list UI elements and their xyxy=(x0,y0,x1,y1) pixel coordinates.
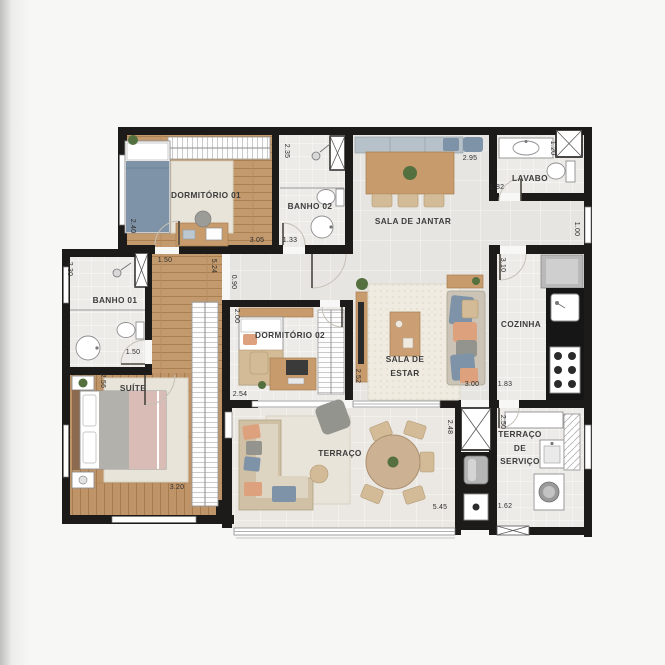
shaft-lavabo xyxy=(556,130,582,157)
sliding-door-sala-terraco xyxy=(353,401,440,407)
dim-servico-depth: 2.50 xyxy=(499,415,506,429)
plant-dorm02 xyxy=(258,381,266,389)
dim-banho02-depth: 2.35 xyxy=(283,144,290,158)
desk-dorm02 xyxy=(250,352,316,390)
dining-table-jantar xyxy=(366,152,454,207)
tv-console xyxy=(356,278,368,382)
dim-lavabo-depth: 1.20 xyxy=(549,141,556,155)
dining-chair xyxy=(398,194,418,207)
desk-chair-dorm02 xyxy=(250,352,268,374)
shaft-banho02 xyxy=(330,136,345,170)
dim-dorm02-depth: 2.00 xyxy=(233,309,240,323)
shower-head-banho02 xyxy=(312,152,320,160)
bench-servico xyxy=(505,412,563,428)
label-suite: SUÍTE xyxy=(120,383,146,393)
stove xyxy=(550,347,580,393)
label-banho-02: BANHO 02 xyxy=(288,201,333,211)
dim-cozinha-width: 1.83 xyxy=(498,381,512,388)
window-suite-bottom xyxy=(112,517,196,523)
label-terraco-servico-2: DE xyxy=(514,443,526,453)
furniture-cozinha xyxy=(541,255,584,400)
coffee-table xyxy=(390,312,420,356)
desk-chair-dorm01 xyxy=(195,211,211,227)
fridge xyxy=(541,255,583,288)
dim-dorm02-right-depth: 2.52 xyxy=(354,369,361,383)
dim-terraco-width: 5.45 xyxy=(433,504,447,511)
label-terraco: TERRAÇO xyxy=(318,448,362,458)
dining-chair xyxy=(424,194,444,207)
wardrobe-corridor xyxy=(192,302,218,506)
dining-chair xyxy=(372,194,392,207)
label-sala-de-estar-2: ESTAR xyxy=(390,368,419,378)
dim-corridor-width: 0.90 xyxy=(230,275,237,289)
plant-dorm01 xyxy=(128,135,138,145)
dim-terraco-depth: 2.48 xyxy=(446,420,453,434)
floor-plan-page: DORMITÓRIO 01 BANHO 02 SALA DE JANTAR LA… xyxy=(0,0,665,665)
dim-dorm01-width: 3.05 xyxy=(250,237,264,244)
nightstand-suite-top xyxy=(72,376,94,390)
plant-estar xyxy=(356,278,368,290)
label-cozinha: COZINHA xyxy=(501,319,541,329)
dim-lavabo-width: 1.82 xyxy=(490,184,504,191)
window-bench xyxy=(355,137,463,153)
label-terraco-servico-3: SERVIÇO xyxy=(500,456,540,466)
kitchen-sink xyxy=(551,294,579,321)
label-lavabo: LAVABO xyxy=(512,173,548,183)
floor-plan: DORMITÓRIO 01 BANHO 02 SALA DE JANTAR LA… xyxy=(0,0,665,665)
chair-corner-jantar xyxy=(463,137,483,152)
dim-suite-depth: 2.56 xyxy=(99,374,106,388)
console-behind-sofa xyxy=(447,275,483,288)
counter-lavabo xyxy=(499,138,553,158)
window-terraco-left xyxy=(225,412,232,438)
headboard-dorm02 xyxy=(239,308,313,317)
floor-passage xyxy=(489,201,584,246)
dim-hall-width: 1.50 xyxy=(158,257,172,264)
washer-servico xyxy=(534,474,564,510)
bed-suite xyxy=(72,390,166,470)
dim-banho01-width: 1.50 xyxy=(126,349,140,356)
shaft-servico-bottom xyxy=(497,526,529,535)
dim-cozinha-depth: 3.10 xyxy=(499,258,506,272)
label-dormitorio-02: DORMITÓRIO 02 xyxy=(255,329,325,340)
dim-banho01-depth: 2.30 xyxy=(66,262,73,276)
floor-hall xyxy=(230,254,353,300)
nightstand-suite-bottom xyxy=(72,472,94,488)
louver-door-servico xyxy=(564,414,580,470)
shaft-terraco xyxy=(461,408,491,450)
toilet-banho01 xyxy=(117,322,144,339)
label-banho-01: BANHO 01 xyxy=(93,295,138,305)
dim-corridor-depth: 5.24 xyxy=(210,259,217,273)
dim-dorm01-depth: 2.40 xyxy=(129,219,136,233)
label-terraco-servico-1: TERRAÇO xyxy=(498,429,542,439)
dim-sala-jantar-width: 2.95 xyxy=(463,155,477,162)
dim-dorm02-width: 2.54 xyxy=(233,391,247,398)
window-servico-right xyxy=(585,425,591,469)
tank-sink-servico xyxy=(540,440,564,468)
label-dormitorio-01: DORMITÓRIO 01 xyxy=(171,189,241,200)
headboard-suite xyxy=(72,390,80,470)
side-table-terraco xyxy=(310,465,328,483)
dim-passage-right: 1.00 xyxy=(573,222,580,236)
window-suite-left xyxy=(64,425,69,477)
sofa-estar xyxy=(447,291,485,385)
dim-banho02-width: 1.33 xyxy=(283,237,297,244)
label-sala-de-jantar: SALA DE JANTAR xyxy=(375,216,451,226)
window-right-wall xyxy=(585,207,591,243)
dim-sala-estar-width: 3.00 xyxy=(465,381,479,388)
label-sala-de-estar-1: SALA DE xyxy=(386,354,425,364)
dim-suite-width: 3.20 xyxy=(170,484,184,491)
shaft-hall xyxy=(135,253,148,287)
dim-servico-width: 1.62 xyxy=(498,503,512,510)
railing-terraco xyxy=(234,528,455,538)
terraco-chair xyxy=(420,452,434,472)
shower-head-banho01 xyxy=(113,269,121,277)
